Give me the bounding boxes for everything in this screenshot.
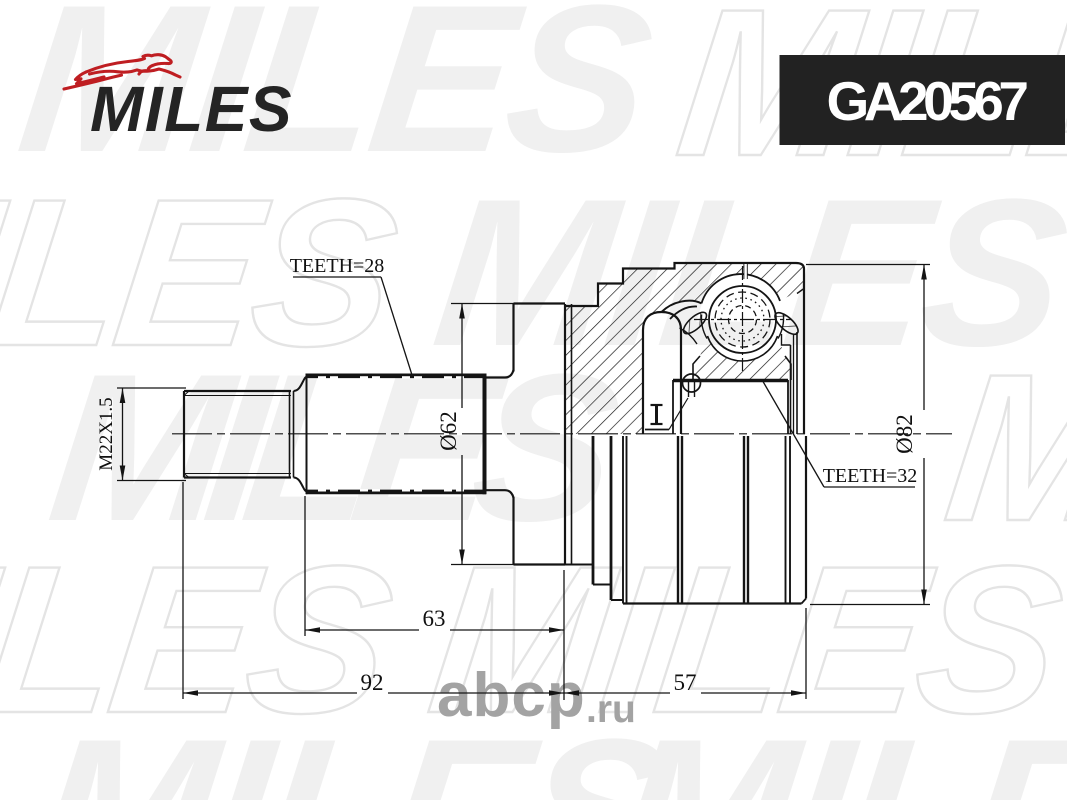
svg-text:TEETH=32: TEETH=32 bbox=[823, 465, 918, 487]
svg-text:92: 92 bbox=[361, 670, 384, 695]
svg-text:MILES: MILES bbox=[40, 330, 629, 565]
svg-text:MILES: MILES bbox=[90, 73, 293, 145]
svg-text:TEETH=28: TEETH=28 bbox=[290, 255, 385, 277]
svg-text:M22X1.5: M22X1.5 bbox=[96, 397, 117, 470]
svg-text:63: 63 bbox=[423, 606, 446, 631]
svg-text:57: 57 bbox=[674, 670, 697, 695]
svg-text:.ru: .ru bbox=[586, 688, 636, 731]
svg-text:Ø62: Ø62 bbox=[436, 411, 461, 451]
svg-text:MILES: MILES bbox=[605, 695, 1067, 800]
svg-text:GA20567: GA20567 bbox=[827, 70, 1028, 132]
svg-text:Ø82: Ø82 bbox=[892, 414, 917, 454]
